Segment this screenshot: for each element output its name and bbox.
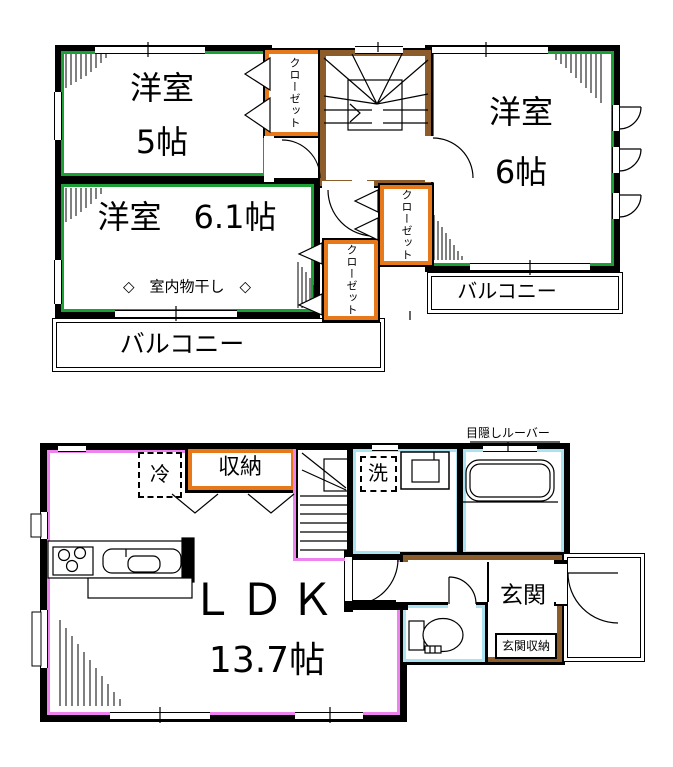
room5-name: 洋室 <box>130 72 194 104</box>
window <box>355 46 403 54</box>
entrance-porch <box>563 553 645 662</box>
floor-plan-canvas: 洋室 5帖 洋室 6帖 洋室 6.1帖 ◇ 室内物干し ◇ クローゼット クロー… <box>0 0 673 767</box>
laundry-label: 洗 <box>368 463 388 483</box>
staircase-1f <box>296 448 352 560</box>
window <box>40 610 48 668</box>
casement-window <box>612 105 620 131</box>
room61-label: 洋室 6.1帖 <box>98 201 277 233</box>
room6-name: 洋室 <box>489 96 553 128</box>
door-gap-toilet <box>448 602 476 612</box>
door-gap-vestibule <box>396 562 409 602</box>
closet-c-label: クローゼット <box>343 244 359 316</box>
casement-window <box>612 147 620 173</box>
louver-note-label: 目隠しルーバー <box>466 427 550 439</box>
balcony-right-label: バルコニー <box>457 281 557 301</box>
ldk-size: 13.7帖 <box>209 643 325 679</box>
casement-swing <box>619 107 641 129</box>
casement-window <box>612 193 620 219</box>
window <box>483 445 537 452</box>
window <box>58 445 86 452</box>
stairs-pink-border-left <box>293 449 296 560</box>
window <box>95 46 205 54</box>
door-gap-room6 <box>425 136 436 182</box>
room-5jo <box>55 45 272 182</box>
fridge-label: 冷 <box>150 464 170 484</box>
door-gap-stairs2f <box>352 179 367 188</box>
entrance-storage-label: 玄関収納 <box>502 640 550 652</box>
window <box>470 263 590 271</box>
door-gap-entrance <box>556 564 567 604</box>
room6-size: 6帖 <box>495 156 547 188</box>
door-arc <box>328 190 374 236</box>
casement-swing <box>619 149 641 171</box>
ldk-name: ＬＤＫ <box>190 579 340 623</box>
window <box>110 712 210 720</box>
storage-label: 収納 <box>218 457 262 479</box>
bathroom <box>457 443 570 560</box>
stairs-pink-border-bottom <box>293 558 351 561</box>
window <box>295 712 363 720</box>
staircase-2f <box>318 48 433 188</box>
door-arc <box>282 140 320 178</box>
window <box>115 310 237 318</box>
balcony-left-label: バルコニー <box>120 332 245 357</box>
entrance-label: 玄関 <box>500 585 546 608</box>
window <box>40 512 48 539</box>
window <box>54 260 62 304</box>
window <box>432 46 548 54</box>
room61-note: ◇ 室内物干し ◇ <box>123 280 251 295</box>
window <box>54 92 62 140</box>
door-gap-room5 <box>264 136 274 182</box>
closet-b-label: クローゼット <box>398 189 414 261</box>
door-gap-ldk-hall <box>345 557 352 601</box>
casement-swing <box>619 195 641 217</box>
closet-a-label: クローゼット <box>286 57 302 129</box>
window <box>372 444 398 451</box>
room5-size: 5帖 <box>136 126 188 158</box>
